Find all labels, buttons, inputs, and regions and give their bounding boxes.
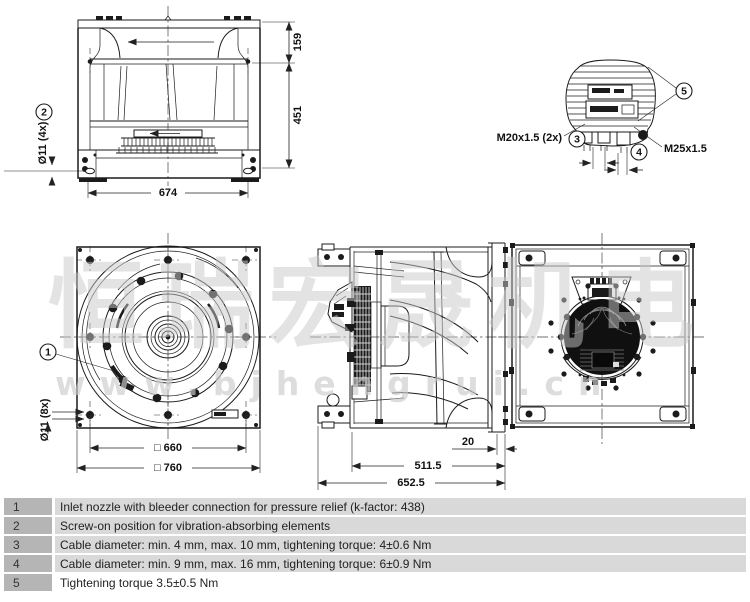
- label-m25: M25x1.5: [664, 143, 707, 155]
- note-number: 1: [4, 498, 52, 515]
- label-m20: M20x1.5 (2x): [497, 132, 563, 144]
- note-row-2: 2 Screw-on position for vibration-absorb…: [4, 517, 746, 534]
- dim-760: □ 760: [154, 462, 182, 474]
- dim-660: □ 660: [154, 442, 182, 454]
- note-row-1: 1 Inlet nozzle with bleeder connection f…: [4, 498, 746, 515]
- note-text: Cable diameter: min. 4 mm, max. 10 mm, t…: [55, 536, 746, 553]
- terminal-box-detail: 5 3 4 M20x1.5 (2x) M25x1.5: [497, 60, 707, 175]
- fan-dimension-drawing: 2 Ø11 (4x) 159 451 674: [0, 0, 750, 497]
- dim-451: 451: [292, 106, 304, 124]
- note-number: 3: [4, 536, 52, 553]
- rear-view: [498, 233, 706, 444]
- note-text: Cable diameter: min. 9 mm, max. 16 mm, t…: [55, 555, 746, 572]
- note-number: 4: [4, 555, 52, 572]
- callout-1: 1: [45, 347, 51, 359]
- dim-holes-4x: Ø11 (4x): [37, 121, 49, 164]
- note-row-4: 4 Cable diameter: min. 9 mm, max. 16 mm,…: [4, 555, 746, 572]
- dim-511-5: 511.5: [415, 460, 442, 472]
- note-number: 2: [4, 517, 52, 534]
- dim-159: 159: [292, 33, 304, 51]
- notes-table: 1 Inlet nozzle with bleeder connection f…: [4, 498, 746, 593]
- callout-2: 2: [41, 107, 47, 119]
- note-text: Screw-on position for vibration-absorbin…: [55, 517, 746, 534]
- dim-674: 674: [159, 187, 178, 199]
- callout-3: 3: [574, 134, 580, 146]
- dim-20: 20: [462, 436, 474, 448]
- callout-5: 5: [681, 86, 687, 98]
- note-text: Tightening torque 3.5±0.5 Nm: [55, 574, 746, 591]
- dim-652-5: 652.5: [397, 477, 425, 489]
- note-row-5: 5 Tightening torque 3.5±0.5 Nm: [4, 574, 746, 591]
- callout-4: 4: [636, 147, 642, 159]
- depth-side-view: 20 511.5 652.5: [310, 243, 522, 490]
- dim-holes-8x: Ø11 (8x): [39, 398, 51, 441]
- technical-drawing-page: 2 Ø11 (4x) 159 451 674: [0, 0, 750, 602]
- note-number: 5: [4, 574, 52, 591]
- front-view: 1 Ø11 (8x) □ 660 □ 760: [39, 233, 276, 474]
- note-text: Inlet nozzle with bleeder connection for…: [55, 498, 746, 515]
- side-view-top: 2 Ø11 (4x) 159 451 674: [4, 6, 304, 199]
- note-row-3: 3 Cable diameter: min. 4 mm, max. 10 mm,…: [4, 536, 746, 553]
